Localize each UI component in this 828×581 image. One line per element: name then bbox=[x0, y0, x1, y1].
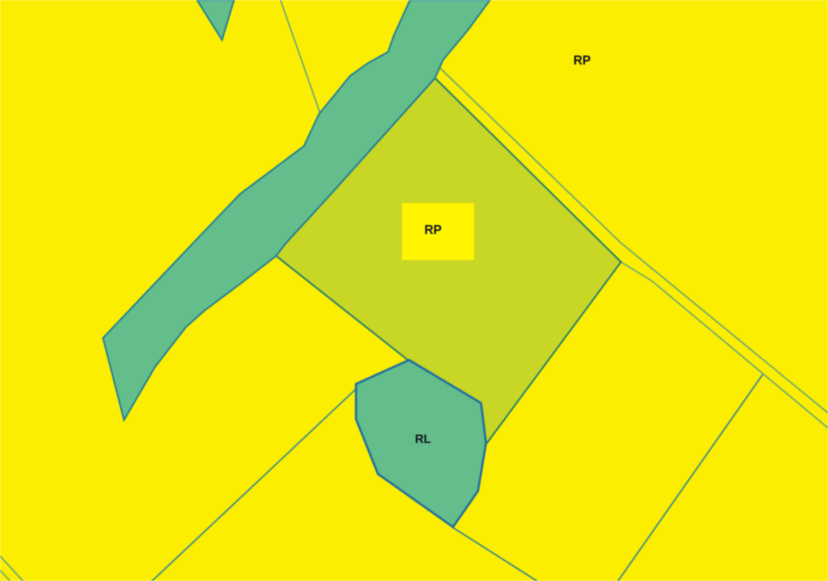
svg-text:RL: RL bbox=[415, 432, 431, 446]
svg-text:RP: RP bbox=[573, 54, 590, 68]
svg-text:RP: RP bbox=[424, 223, 441, 237]
